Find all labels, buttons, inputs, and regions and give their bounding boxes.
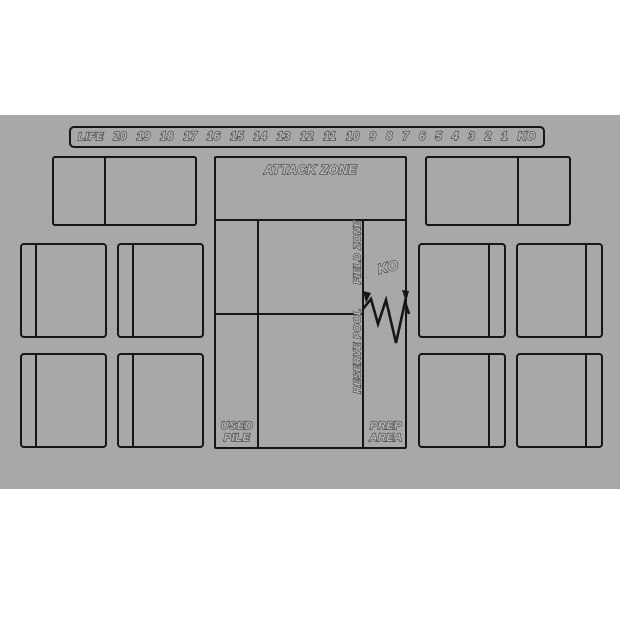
reserve-pool-zone[interactable] [259, 315, 362, 447]
life-track-label: LIFE [78, 131, 104, 143]
field-zone[interactable] [259, 221, 362, 313]
card-slot-divider [132, 245, 134, 336]
playmat: LIFE 20 19 18 17 16 15 14 13 12 11 10 9 … [0, 115, 620, 489]
card-slot-right-bottom-2[interactable] [516, 353, 603, 448]
attack-zone[interactable] [216, 158, 405, 219]
card-slot-left-top-2[interactable] [117, 243, 204, 338]
central-board: ATTACK ZONE FIELD ZONE RESERVE POOL KO U… [214, 156, 407, 449]
life-value[interactable]: 12 [300, 131, 314, 143]
card-slot-right-bottom-1[interactable] [418, 353, 506, 448]
life-value[interactable]: 10 [346, 131, 360, 143]
life-value[interactable]: 9 [370, 131, 377, 143]
card-slot-divider [132, 355, 134, 446]
life-value[interactable]: KO [518, 131, 536, 143]
card-slot-divider [585, 355, 587, 446]
card-slot-divider [488, 245, 490, 336]
life-value[interactable]: 4 [452, 131, 459, 143]
life-value[interactable]: 17 [183, 131, 197, 143]
life-value[interactable]: 13 [277, 131, 291, 143]
card-slot-divider [35, 245, 37, 336]
used-pile-zone[interactable] [216, 221, 257, 447]
life-value[interactable]: 2 [485, 131, 492, 143]
life-value[interactable]: 5 [435, 131, 442, 143]
life-value[interactable]: 16 [207, 131, 221, 143]
used-pile-label: USED PILE [221, 420, 254, 444]
card-slot-left-top-1[interactable] [20, 243, 107, 338]
life-value[interactable]: 15 [230, 131, 244, 143]
life-value[interactable]: 7 [402, 131, 409, 143]
life-value[interactable]: 11 [324, 131, 337, 143]
life-value[interactable]: 20 [113, 131, 127, 143]
life-value[interactable]: 14 [254, 131, 268, 143]
card-slot-right-top-2[interactable] [516, 243, 603, 338]
life-value[interactable]: 18 [160, 131, 174, 143]
life-value[interactable]: 19 [137, 131, 151, 143]
field-zone-label: FIELD ZONE [353, 220, 364, 284]
life-value[interactable]: 6 [419, 131, 426, 143]
card-slot-divider [585, 245, 587, 336]
life-value[interactable]: 1 [501, 131, 508, 143]
card-zone-divider [517, 158, 519, 224]
prep-area-label: PREP AREA [369, 420, 402, 444]
life-value[interactable]: 8 [386, 131, 393, 143]
card-slot-divider [488, 355, 490, 446]
card-slot-left-bottom-2[interactable] [117, 353, 204, 448]
life-track: LIFE 20 19 18 17 16 15 14 13 12 11 10 9 … [69, 126, 545, 148]
card-zone-top-left[interactable] [52, 156, 197, 226]
card-slot-divider [35, 355, 37, 446]
card-slot-right-top-1[interactable] [418, 243, 506, 338]
ko-tear-icon [362, 287, 410, 347]
life-value[interactable]: 3 [468, 131, 475, 143]
card-zone-top-right[interactable] [425, 156, 571, 226]
card-zone-divider [104, 158, 106, 224]
card-slot-left-bottom-1[interactable] [20, 353, 107, 448]
